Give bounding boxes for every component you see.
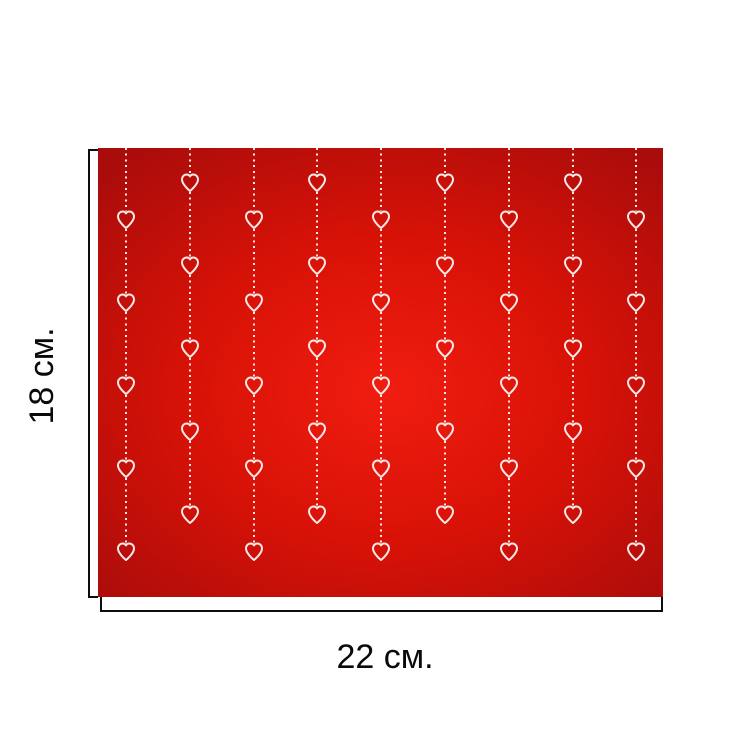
heart-icon [561,502,585,526]
dotted-line-segment [380,395,382,460]
dotted-line-segment [253,148,255,211]
heart-icon [305,253,329,277]
dotted-line-segment [380,148,382,211]
dotted-line-segment [635,395,637,460]
dotted-line-segment [316,192,318,257]
heart-icon [497,373,521,397]
height-dimension-tick-bottom [88,596,98,598]
dotted-line-segment [572,192,574,257]
heart-icon [561,170,585,194]
heart-icon [624,290,648,314]
dotted-line-segment [380,478,382,543]
heart-icon [433,170,457,194]
dotted-line-segment [508,148,510,211]
dotted-line-segment [253,395,255,460]
width-label: 22 см. [305,637,465,677]
width-dimension-line [100,610,663,612]
heart-icon [114,373,138,397]
dotted-line-segment [635,229,637,294]
heart-icon [242,456,266,480]
heart-icon [369,373,393,397]
heart-icon [561,336,585,360]
heart-icon [305,170,329,194]
height-label: 18 см. [22,316,62,436]
heart-icon [624,207,648,231]
dotted-line-segment [444,441,446,506]
heart-icon [242,539,266,563]
dotted-line-segment [635,312,637,377]
heart-icon [433,336,457,360]
dotted-line-segment [189,441,191,506]
heart-icon [433,253,457,277]
heart-icon [114,456,138,480]
heart-icon [305,419,329,443]
heart-icon [178,253,202,277]
dotted-line-segment [635,478,637,543]
heart-icon [305,502,329,526]
dotted-line-segment [508,395,510,460]
heart-icon [305,336,329,360]
heart-icon [178,170,202,194]
heart-icon [178,502,202,526]
dotted-line-segment [253,478,255,543]
heart-icon [497,539,521,563]
dotted-line-segment [189,192,191,257]
heart-icon [433,502,457,526]
dotted-line-segment [380,229,382,294]
height-dimension-tick-top [88,149,98,151]
width-dimension-tick-left [100,597,102,612]
dotted-line-segment [125,478,127,543]
dotted-line-segment [444,358,446,423]
dotted-line-segment [125,395,127,460]
product-dimension-figure: 18 см. 22 см. [0,0,750,750]
heart-icon [561,419,585,443]
width-dimension-tick-right [661,597,663,612]
heart-icon [114,290,138,314]
heart-icon [497,207,521,231]
dotted-line-segment [380,312,382,377]
heart-icon [369,290,393,314]
heart-icon [497,456,521,480]
fabric-swatch [98,148,663,597]
heart-icon [178,419,202,443]
dotted-line-segment [572,358,574,423]
dotted-line-segment [316,358,318,423]
heart-icon [624,539,648,563]
dotted-line-segment [125,148,127,211]
dotted-line-segment [635,148,637,211]
dotted-line-segment [316,441,318,506]
dotted-line-segment [444,192,446,257]
heart-icon [369,456,393,480]
dotted-line-segment [508,478,510,543]
heart-icon [114,207,138,231]
dotted-line-segment [189,358,191,423]
heart-icon [114,539,138,563]
dotted-line-segment [125,229,127,294]
heart-icon [497,290,521,314]
dotted-line-segment [444,275,446,340]
heart-icon [242,207,266,231]
heart-icon [433,419,457,443]
dotted-line-segment [508,229,510,294]
heart-icon [178,336,202,360]
dotted-line-segment [508,312,510,377]
dotted-line-segment [253,312,255,377]
heart-icon [242,290,266,314]
dotted-line-segment [253,229,255,294]
dotted-line-segment [572,275,574,340]
heart-icon [624,456,648,480]
dotted-line-segment [572,441,574,506]
dotted-line-segment [125,312,127,377]
dotted-line-segment [316,275,318,340]
heart-icon [561,253,585,277]
heart-icon [624,373,648,397]
height-dimension-line [88,149,90,598]
dotted-line-segment [189,275,191,340]
heart-icon [369,539,393,563]
heart-icon [242,373,266,397]
heart-icon [369,207,393,231]
